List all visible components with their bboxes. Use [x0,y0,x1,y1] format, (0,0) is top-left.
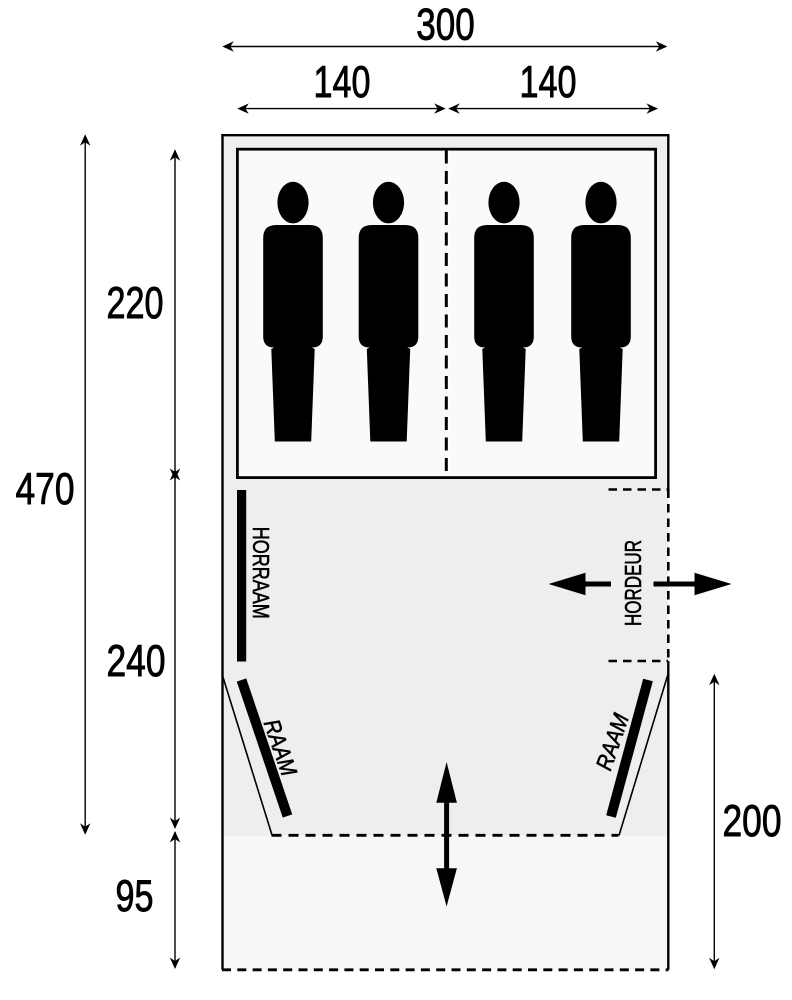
svg-text:200: 200 [723,796,782,846]
svg-text:470: 470 [16,464,75,514]
svg-text:95: 95 [116,871,154,921]
svg-text:HORDEUR: HORDEUR [620,540,646,626]
svg-text:220: 220 [107,278,164,328]
svg-text:300: 300 [416,0,475,49]
svg-text:240: 240 [107,636,166,686]
svg-text:140: 140 [314,57,371,107]
svg-text:HORRAAM: HORRAAM [248,527,274,619]
svg-text:140: 140 [520,57,577,107]
